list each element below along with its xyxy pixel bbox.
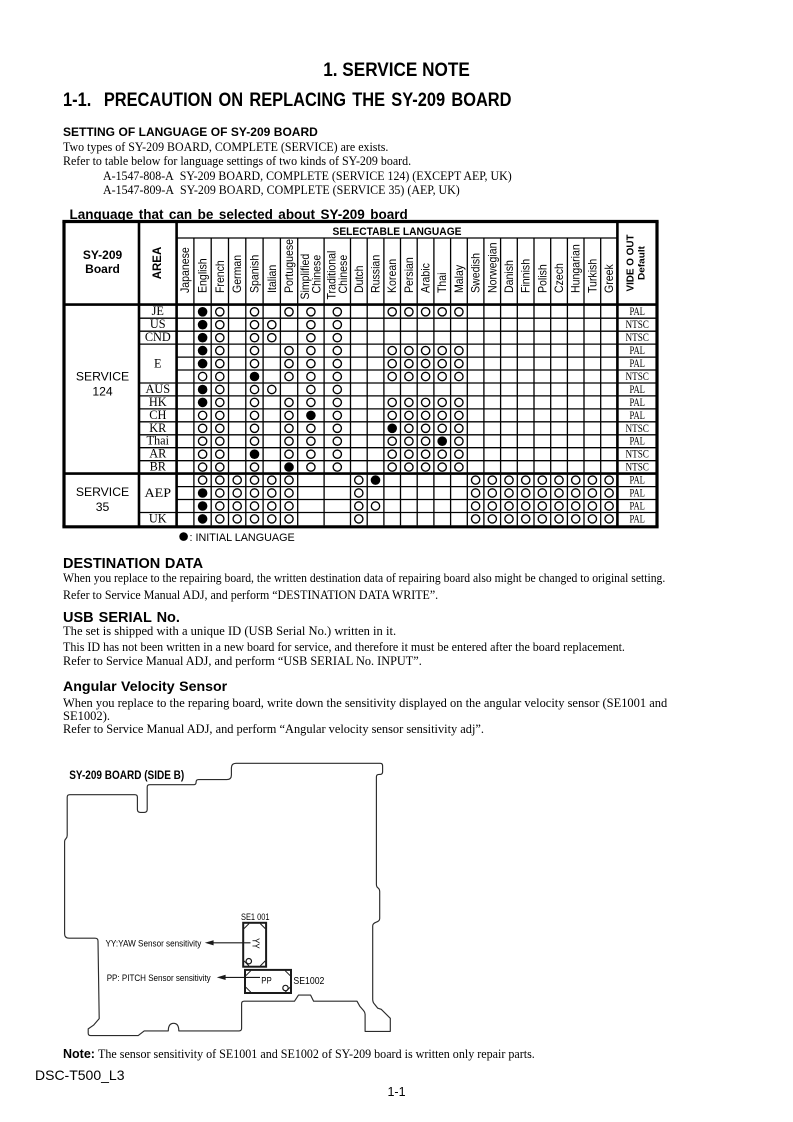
svg-text:PP: PITCH Sensor sensitivity: PP: PITCH Sensor sensitivity xyxy=(107,972,211,983)
svg-text:YY:YAW Sensor sensitivity: YY:YAW Sensor sensitivity xyxy=(106,937,202,948)
svg-text:SE1 001: SE1 001 xyxy=(241,912,270,923)
svg-text:YY: YY xyxy=(250,938,261,949)
svg-text:SE1002: SE1002 xyxy=(293,976,324,987)
svg-text:SY-209 BOARD (SIDE B): SY-209 BOARD (SIDE B) xyxy=(69,770,184,782)
svg-text:PP: PP xyxy=(261,976,272,987)
